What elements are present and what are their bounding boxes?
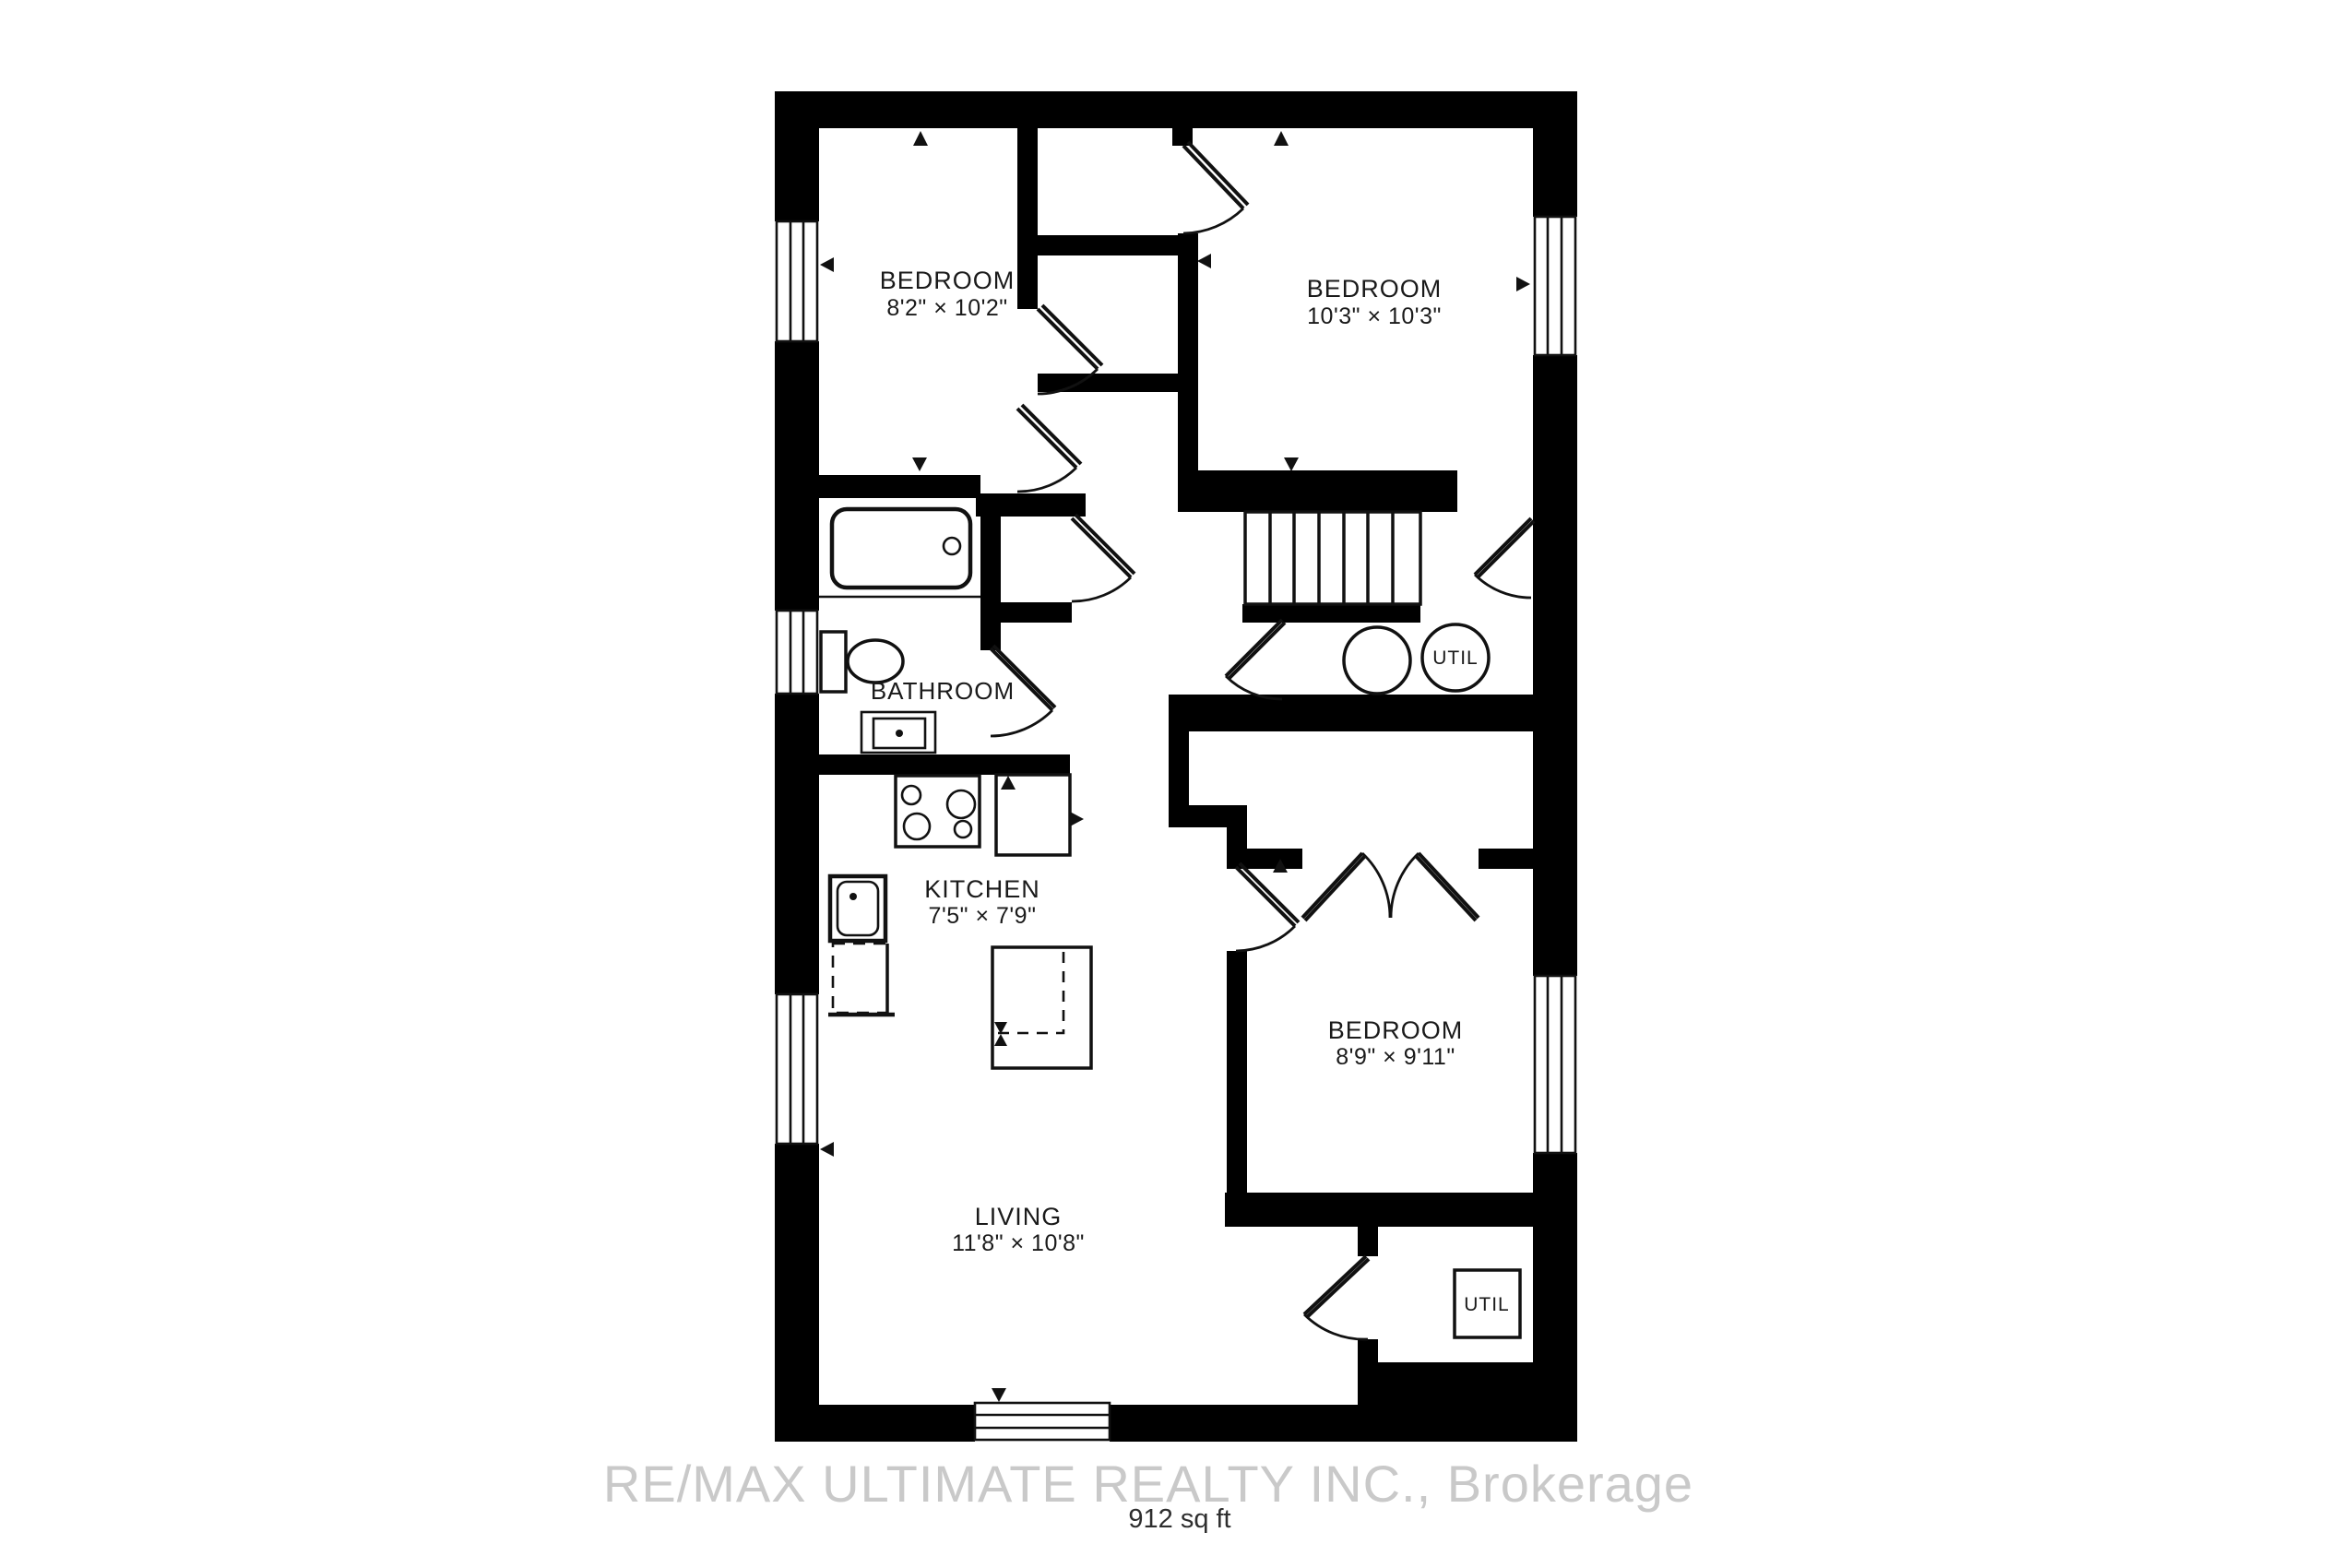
door-hall-closet-icon [1072, 515, 1134, 601]
door-closet-double-left-icon [1302, 853, 1390, 921]
door-utility-room-icon [1304, 1256, 1369, 1339]
marker-down-icon [912, 457, 927, 471]
door-closet-top-right-icon [1183, 142, 1248, 233]
kitchen-island [992, 947, 1091, 1068]
marker-left-icon [820, 257, 834, 272]
room-label-kitchen: KITCHEN [924, 875, 1040, 903]
room-label-living: LIVING [975, 1203, 1063, 1230]
room-label-bedroom-top-left: BEDROOM [880, 267, 1016, 294]
room-dims-bedroom-top-left: 8'2" × 10'2" [886, 295, 1007, 321]
room-dims-bedroom-right: 8'9" × 9'11" [1336, 1044, 1455, 1070]
door-bedroom-right-icon [1236, 863, 1299, 951]
window-left-top-icon [777, 221, 817, 341]
door-closet-double-right-icon [1391, 853, 1479, 921]
window-right-bedroom-icon [1535, 976, 1575, 1153]
marker-up-icon [913, 131, 928, 146]
water-heater-icon [1344, 627, 1410, 694]
door-stair-landing-icon [1475, 518, 1534, 598]
marker-right-icon [1070, 812, 1084, 826]
doors [991, 142, 1534, 1339]
room-label-utility-room: UTIL [1464, 1294, 1510, 1315]
staircase [1245, 512, 1420, 604]
room-dims-kitchen: 7'5" × 7'9" [929, 903, 1037, 929]
window-right-top-icon [1535, 217, 1575, 355]
marker-down-icon [992, 1388, 1006, 1402]
room-label-bedroom-right: BEDROOM [1328, 1016, 1464, 1044]
marker-right-icon [1516, 277, 1530, 291]
floor-plan-page: BEDROOM 8'2" × 10'2" BEDROOM 10'3" × 10'… [0, 0, 2352, 1568]
floor-plan: BEDROOM 8'2" × 10'2" BEDROOM 10'3" × 10'… [0, 0, 2352, 1568]
stove-icon [896, 776, 980, 847]
marker-up-icon [1274, 131, 1289, 146]
door-bedroom-top-left-icon [1017, 405, 1081, 492]
bathtub-icon [819, 509, 980, 597]
room-label-bathroom: BATHROOM [871, 677, 1015, 705]
window-left-kitchen-icon [777, 994, 817, 1144]
area-label: 912 sq ft [1128, 1504, 1230, 1534]
room-label-utility-closet: UTIL [1432, 647, 1479, 669]
window-bottom-living-icon [975, 1403, 1110, 1440]
marker-left-icon [1197, 254, 1211, 268]
marker-left-icon [820, 1142, 834, 1157]
dishwasher-icon [828, 944, 895, 1015]
marker-up-icon [1001, 776, 1016, 790]
bathroom-sink-icon [861, 712, 935, 753]
room-label-bedroom-top-right: BEDROOM [1307, 275, 1443, 303]
door-utility-corridor-icon [1226, 620, 1285, 699]
fridge-icon [830, 876, 885, 941]
marker-down-icon [1284, 457, 1299, 471]
room-dims-bedroom-top-right: 10'3" × 10'3" [1307, 303, 1442, 329]
window-left-bathroom-icon [777, 611, 817, 694]
room-dims-living: 11'8" × 10'8" [952, 1230, 1085, 1256]
